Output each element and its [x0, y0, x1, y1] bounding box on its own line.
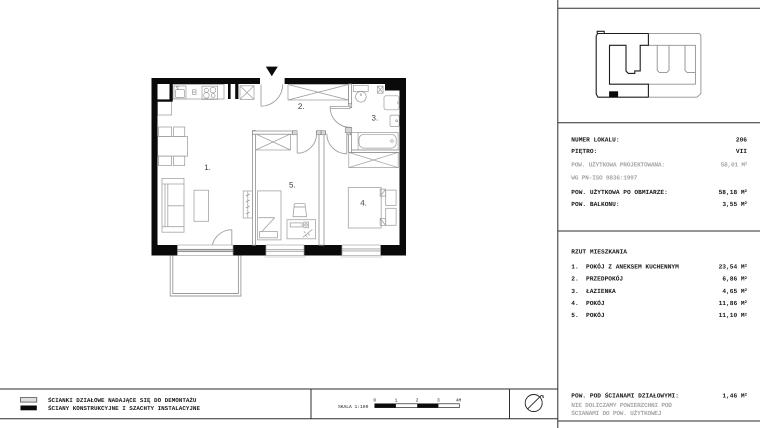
- svg-text:3: 3: [437, 397, 440, 403]
- svg-text:11,86 M2: 11,86 M2: [719, 300, 748, 307]
- svg-text:0: 0: [373, 397, 376, 403]
- svg-text:3.: 3.: [372, 113, 379, 122]
- svg-text:1.: 1.: [571, 263, 578, 270]
- svg-text:PIĘTRO:: PIĘTRO:: [571, 148, 597, 155]
- svg-text:PRZEDPOKÓJ: PRZEDPOKÓJ: [586, 275, 623, 283]
- svg-text:23,54 M2: 23,54 M2: [719, 263, 748, 270]
- svg-text:VII: VII: [736, 148, 747, 155]
- svg-text:1.: 1.: [204, 163, 211, 172]
- svg-text:6,86 M2: 6,86 M2: [722, 276, 747, 283]
- svg-text:2: 2: [416, 397, 419, 403]
- svg-text:ŚCIANAMI DO POW. UŻYTKOWEJ: ŚCIANAMI DO POW. UŻYTKOWEJ: [571, 409, 662, 417]
- svg-text:POKÓJ Z ANEKSEM KUCHENNYM: POKÓJ Z ANEKSEM KUCHENNYM: [586, 262, 679, 270]
- svg-text:ŚCIANY KONSTRUKCYJNE I SZACHTY: ŚCIANY KONSTRUKCYJNE I SZACHTY INSTALACY…: [48, 405, 200, 412]
- svg-text:ŁAZIENKA: ŁAZIENKA: [586, 288, 616, 295]
- svg-text:POW. UŻYTKOWA PROJEKTOWANA:: POW. UŻYTKOWA PROJEKTOWANA:: [571, 162, 665, 169]
- svg-text:58,18 M2: 58,18 M2: [719, 189, 748, 196]
- svg-text:11,10 M2: 11,10 M2: [719, 312, 748, 319]
- svg-text:WG PN-ISO 9836:1997: WG PN-ISO 9836:1997: [571, 175, 637, 182]
- svg-text:1,46 M2: 1,46 M2: [722, 392, 747, 399]
- svg-text:N: N: [542, 394, 545, 400]
- svg-text:58,01 M2: 58,01 M2: [721, 162, 748, 169]
- svg-text:1: 1: [395, 397, 398, 403]
- svg-text:2.: 2.: [571, 276, 578, 283]
- svg-text:POW. BALKONU:: POW. BALKONU:: [571, 201, 619, 208]
- svg-text:4M: 4M: [456, 397, 462, 403]
- svg-text:3,55 M2: 3,55 M2: [722, 201, 747, 208]
- svg-text:4.: 4.: [360, 199, 367, 208]
- svg-text:4,65 M2: 4,65 M2: [722, 288, 747, 295]
- svg-text:RZUT MIESZKANIA: RZUT MIESZKANIA: [571, 249, 627, 256]
- svg-text:POW. POD ŚCIANAMI DZIAŁOWYMI:: POW. POD ŚCIANAMI DZIAŁOWYMI:: [571, 391, 679, 399]
- svg-text:POKÓJ: POKÓJ: [586, 311, 605, 319]
- svg-text:5.: 5.: [571, 312, 578, 319]
- svg-text:3.: 3.: [571, 288, 578, 295]
- svg-text:ŚCIANKI DZIAŁOWE NADAJĄCE SIĘ: ŚCIANKI DZIAŁOWE NADAJĄCE SIĘ DO DEMONTA…: [48, 397, 197, 404]
- svg-text:POW. UŻYTKOWA PO OBMIARZE:: POW. UŻYTKOWA PO OBMIARZE:: [571, 189, 668, 196]
- svg-text:POKÓJ: POKÓJ: [586, 299, 605, 307]
- svg-text:4.: 4.: [571, 300, 578, 307]
- svg-text:5.: 5.: [289, 180, 296, 189]
- svg-text:SKALA 1:100: SKALA 1:100: [338, 404, 369, 410]
- svg-text:206: 206: [736, 137, 747, 144]
- svg-text:NIE DOLICZAMY POWIERZCHNI POD: NIE DOLICZAMY POWIERZCHNI POD: [571, 402, 672, 409]
- svg-text:NUMER LOKALU:: NUMER LOKALU:: [571, 137, 619, 144]
- svg-text:2.: 2.: [298, 102, 305, 111]
